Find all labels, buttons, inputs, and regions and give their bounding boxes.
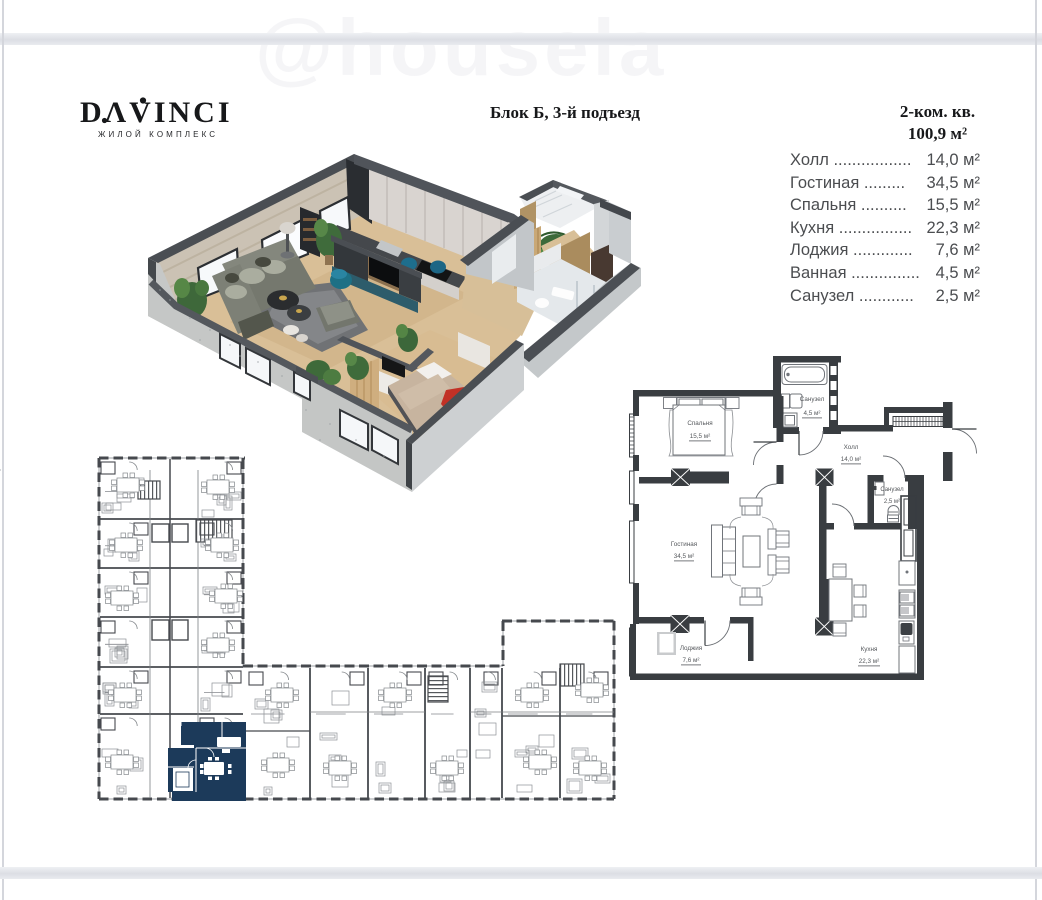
- svg-text:15,5 м²: 15,5 м²: [690, 433, 710, 440]
- svg-text:Холл: Холл: [844, 444, 859, 451]
- svg-text:34,5 м²: 34,5 м²: [674, 553, 694, 560]
- svg-text:Кухня: Кухня: [861, 646, 878, 653]
- svg-text:7,6 м²: 7,6 м²: [683, 657, 700, 664]
- svg-text:Спальня: Спальня: [687, 420, 712, 427]
- svg-text:22,3 м²: 22,3 м²: [859, 658, 879, 665]
- svg-text:2,5 м²: 2,5 м²: [884, 499, 900, 505]
- svg-text:Лоджия: Лоджия: [680, 645, 702, 652]
- svg-text:Санузел: Санузел: [800, 396, 825, 403]
- svg-text:Санузел: Санузел: [880, 487, 904, 493]
- svg-text:4,5 м²: 4,5 м²: [804, 410, 821, 417]
- svg-text:14,0 м²: 14,0 м²: [841, 456, 861, 463]
- svg-text:Гостиная: Гостиная: [671, 541, 697, 548]
